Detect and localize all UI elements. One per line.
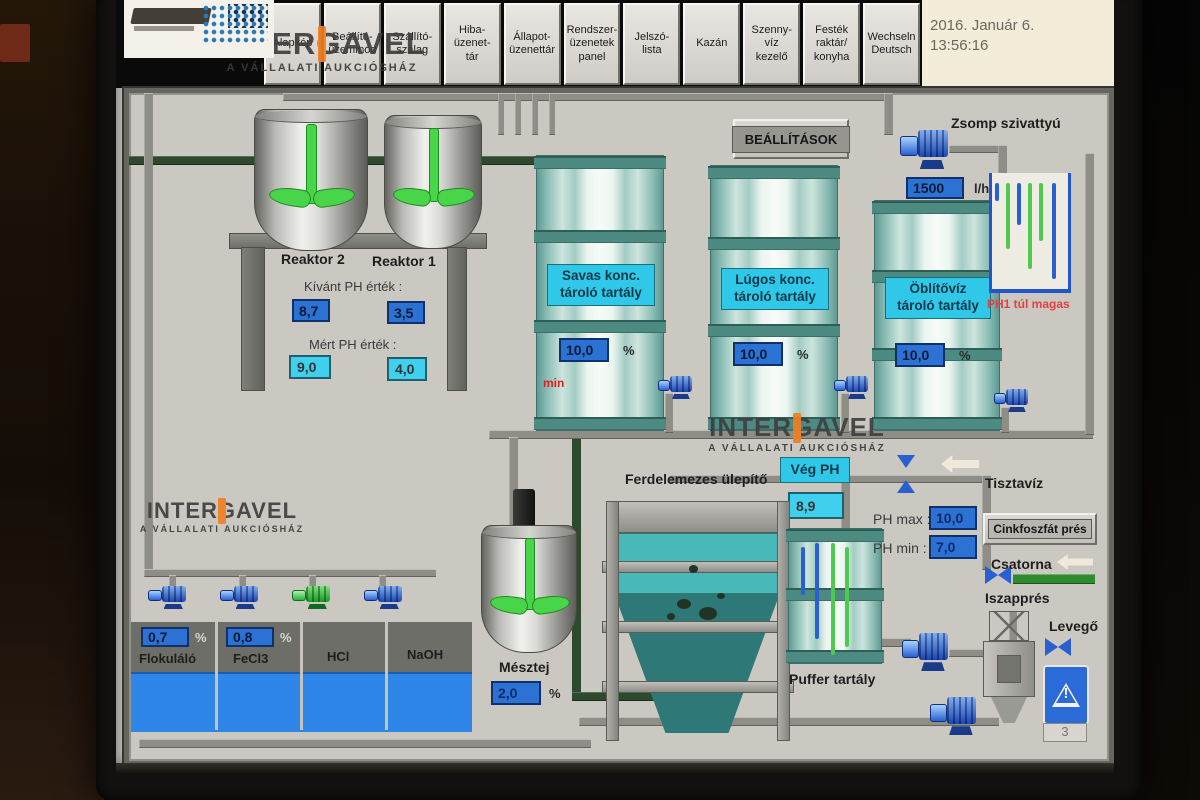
tank-hoop: [534, 417, 666, 430]
bezel-bottom-edge: [116, 763, 1114, 773]
acid-tank-level-input[interactable]: 10,0: [559, 338, 609, 362]
final-ph-label: Vég PH: [780, 457, 850, 483]
flokulalo-label: Flokuláló: [139, 651, 196, 666]
pump-head: [834, 380, 847, 391]
pump-base: [164, 604, 183, 609]
tank-hoop: [708, 237, 840, 250]
pump-base: [920, 160, 944, 169]
lime-milk-unit: %: [549, 686, 561, 701]
hcl-pump-running[interactable]: [291, 585, 337, 609]
tank-separator: [385, 622, 388, 730]
sump-pump[interactable]: [899, 127, 957, 169]
rinse-tank-unit: %: [959, 348, 971, 363]
level-sensor-bar: [1017, 183, 1021, 225]
alarm-warning-sign[interactable]: !: [1043, 665, 1089, 725]
watermark-mid-left: INTERGAVEL A VÁLLALATI AUKCIÓSHÁZ: [122, 498, 322, 534]
mixer-blade: [312, 185, 356, 209]
tab-festek-raktar[interactable]: Festék raktár/ konyha: [803, 3, 860, 85]
level-sensor-bar: [995, 183, 999, 201]
warning-exclamation: !: [1064, 685, 1069, 702]
buffer-transfer-pump[interactable]: [901, 631, 957, 671]
pump-body: [846, 376, 868, 392]
acid-storage-tank: Savas konc. tároló tartály 10,0 % min: [536, 155, 664, 431]
flokulalo-unit: %: [195, 630, 207, 645]
process-mimic-panel: Reaktor 2 Reaktor 1 Kívánt PH érték : 8,…: [124, 88, 1114, 764]
watermark-tagline: A VÁLLALATI AUKCIÓSHÁZ: [672, 443, 922, 454]
pump-head: [900, 136, 917, 155]
tab-allapot-uzenettar[interactable]: Állapot- üzenettár: [504, 3, 561, 85]
pump-base: [236, 604, 255, 609]
pump-body: [1006, 389, 1028, 405]
pump-head: [994, 393, 1007, 404]
pipe: [532, 93, 538, 135]
support-column: [241, 247, 265, 391]
settler-rail: [602, 621, 794, 633]
fecl3-pump[interactable]: [219, 585, 265, 609]
pipe: [998, 145, 1007, 175]
watermark-orange-bar: [793, 413, 801, 443]
photo-background-left: [0, 0, 104, 800]
air-label: Levegő: [1049, 618, 1098, 634]
sludge-speck: [717, 593, 725, 599]
alkaline-tank-label: Lúgos konc. tároló tartály: [721, 268, 829, 310]
sludge-speck: [699, 607, 717, 620]
zinc-phosphate-press-button[interactable]: Cinkfoszfát prés: [983, 513, 1097, 545]
support-column: [447, 247, 467, 391]
sewer-arrow-icon: [1057, 554, 1093, 570]
alkaline-storage-tank: Lúgos konc. tároló tartály 10,0 %: [710, 165, 838, 431]
reactor1-measured-ph-value: 4,0: [387, 357, 427, 381]
sump-flow-value: 1500: [906, 177, 964, 199]
grate-icon: [992, 173, 1068, 180]
fecl3-conc-input[interactable]: 0,8: [226, 627, 274, 647]
drain-pipe: [1013, 574, 1095, 584]
tab-kazan[interactable]: Kazán: [683, 3, 740, 85]
reactor-1-vessel[interactable]: [384, 115, 482, 249]
date-text: 2016. Január 6.: [930, 16, 1110, 36]
watermark-orange-bar: [318, 26, 326, 62]
acid-tank-unit: %: [623, 343, 635, 358]
sludge-speck: [667, 613, 675, 620]
pump-body: [947, 697, 976, 723]
tank-separator: [215, 622, 218, 730]
pump-base: [380, 604, 399, 609]
alkaline-tank-level-input[interactable]: 10,0: [733, 342, 783, 366]
pump-head: [364, 590, 378, 601]
tab-szennyviz-kezelo[interactable]: Szenny- víz kezelő: [743, 3, 800, 85]
pump-head: [902, 640, 919, 658]
rinse-tank-label: Öblítővíz tároló tartály: [885, 277, 991, 319]
press-plate: [997, 655, 1021, 683]
settler-rail: [602, 561, 794, 573]
acid-tank-label: Savas konc. tároló tartály: [547, 264, 655, 306]
rinse-tank-level-input[interactable]: 10,0: [895, 343, 945, 367]
fecl3-label: FeCl3: [233, 651, 268, 666]
pump-head: [658, 380, 671, 391]
press-hopper: [989, 611, 1029, 641]
level-sensor-bar: [831, 543, 835, 655]
level-sensor-bar: [815, 543, 819, 639]
pipe: [498, 93, 504, 135]
pump-body: [306, 586, 330, 602]
pipe: [283, 93, 893, 101]
level-sensor-bar: [845, 547, 849, 647]
mixer-shaft: [429, 128, 439, 202]
settings-button[interactable]: BEÁLLÍTÁSOK: [733, 119, 849, 159]
alarm-count: 3: [1043, 723, 1087, 742]
vendor-logo-wordmark: [130, 8, 211, 24]
mixer-blade: [436, 185, 476, 207]
settler-rail: [602, 681, 794, 693]
acid-dosing-pump[interactable]: [657, 375, 699, 399]
level-sensor-bar: [1006, 183, 1010, 249]
alkaline-dosing-pump[interactable]: [833, 375, 875, 399]
reactor-2-vessel[interactable]: [254, 109, 368, 251]
clean-water-arrow-icon: [941, 455, 979, 473]
ph-max-label: PH max :: [873, 511, 931, 527]
sump-pump-label: Zsomp szivattyú: [951, 115, 1061, 131]
pump-body: [918, 130, 948, 158]
measured-ph-label: Mért PH érték :: [309, 337, 396, 352]
sludge-pump[interactable]: [929, 695, 985, 735]
buffer-tank-label: Puffer tartály: [789, 671, 875, 687]
pipe: [515, 93, 521, 135]
mixer-blade: [489, 593, 529, 615]
sump-pit-graphic: [989, 173, 1071, 293]
pump-body: [919, 633, 948, 659]
pump-base: [308, 604, 327, 609]
zinc-phosphate-press-label: Cinkfoszfát prés: [988, 519, 1091, 539]
reactor2-desired-ph-input[interactable]: 8,7: [292, 299, 330, 322]
level-sensor-bar: [1039, 183, 1043, 241]
tab-wechseln-deutsch[interactable]: Wechseln Deutsch: [863, 3, 920, 85]
time-text: 13:56:16: [930, 36, 1110, 56]
outlet-valve[interactable]: [897, 455, 915, 493]
sewer-label: Csatorna: [991, 556, 1052, 572]
rinse-dosing-pump[interactable]: [993, 388, 1035, 412]
pump-base: [949, 726, 973, 735]
reactor-1-label: Reaktor 1: [372, 253, 436, 269]
alkaline-tank-unit: %: [797, 347, 809, 362]
lime-milk-label: Mésztej: [499, 659, 550, 675]
rinse-water-storage-tank: Öblítővíz tároló tartály 10,0 %: [874, 200, 1000, 431]
pipe: [1085, 153, 1094, 435]
pipe: [884, 93, 893, 135]
ph-min-label: PH min :: [873, 540, 927, 556]
level-sensor-bar: [801, 547, 805, 595]
ph-max-input[interactable]: 10,0: [929, 506, 977, 530]
pump-body: [378, 586, 402, 602]
pipe: [139, 739, 591, 748]
level-sensor-bar: [1028, 183, 1032, 269]
tank-hoop: [872, 201, 1002, 214]
settings-button-label: BEÁLLÍTÁSOK: [732, 126, 850, 153]
pump-body: [234, 586, 258, 602]
tank-hoop: [708, 324, 840, 337]
clarifier-label: Ferdelemezes ülepítő: [625, 471, 767, 487]
pump-head: [220, 590, 234, 601]
watermark-orange-bar: [218, 498, 226, 524]
photo-background-object: [0, 24, 30, 62]
ph-min-input[interactable]: 7,0: [929, 535, 977, 559]
pump-base: [921, 662, 945, 671]
tank-hoop: [786, 650, 884, 663]
sludge-speck: [677, 599, 691, 609]
fecl3-unit: %: [280, 630, 292, 645]
pump-base: [672, 394, 690, 399]
naoh-label: NaOH: [407, 647, 443, 662]
flokulalo-conc-input[interactable]: 0,7: [141, 627, 189, 647]
watermark-tagline: A VÁLLALATI AUKCIÓSHÁZ: [162, 62, 482, 74]
mixer-blade: [392, 185, 432, 207]
flokulalo-pump[interactable]: [147, 585, 193, 609]
pump-head: [292, 590, 306, 601]
reactor1-desired-ph-input[interactable]: 3,5: [387, 301, 425, 324]
settler-leg: [606, 501, 619, 741]
desired-ph-label: Kívánt PH érték :: [304, 279, 402, 294]
tank-separator: [300, 622, 303, 730]
settler-funnel: [614, 593, 780, 733]
clean-water-label: Tisztavíz: [985, 475, 1043, 491]
final-ph-value: 8,9: [788, 492, 844, 519]
level-sensor-bar: [1052, 183, 1056, 279]
vendor-logo-subline: [134, 26, 194, 31]
pipe: [549, 93, 555, 135]
pump-body: [162, 586, 186, 602]
lime-milk-conc-input[interactable]: 2,0: [491, 681, 541, 705]
watermark-tagline: A VÁLLALATI AUKCIÓSHÁZ: [122, 524, 322, 534]
mixer-blade: [531, 593, 571, 615]
tab-jelszo-lista[interactable]: Jelszó- lista: [623, 3, 680, 85]
min-level-flag: min: [543, 376, 564, 390]
hmi-screen: 2016. Január 6. 13:56:16 Alapkép Beállít…: [116, 0, 1114, 764]
sludge-press-label: Iszapprés: [985, 590, 1050, 606]
pump-base: [1008, 407, 1026, 412]
vendor-logo: [124, 0, 274, 58]
ph1-alarm-text: PH1 túl magas: [987, 297, 1070, 311]
air-valve[interactable]: [1045, 638, 1071, 656]
pipe: [144, 569, 436, 577]
tank-hoop: [534, 156, 666, 169]
pump-head: [930, 704, 947, 722]
pump-base: [848, 394, 866, 399]
tank-hoop: [708, 166, 840, 179]
sludge-speck: [689, 565, 698, 573]
pump-head: [148, 590, 162, 601]
datetime-display: 2016. Január 6. 13:56:16: [930, 16, 1110, 57]
naoh-pump[interactable]: [363, 585, 409, 609]
tank-hoop: [534, 230, 666, 243]
tank-hoop: [534, 320, 666, 333]
watermark-center: INTERGAVEL A VÁLLALATI AUKCIÓSHÁZ: [672, 412, 922, 454]
sump-flow-unit: l/h: [974, 181, 989, 196]
tab-rendszer-uzenetek[interactable]: Rendszer- üzenetek panel: [564, 3, 621, 85]
lime-milk-tank[interactable]: [481, 525, 577, 653]
vendor-logo-dot-matrix-dark: [228, 4, 268, 28]
pump-body: [670, 376, 692, 392]
photo-background-right: [1136, 0, 1200, 800]
reactor2-measured-ph-value: 9,0: [289, 355, 331, 379]
settler-top-beam: [606, 501, 790, 533]
photo-of-hmi-terminal: 2016. Január 6. 13:56:16 Alapkép Beállít…: [0, 0, 1200, 800]
tank-hoop: [786, 529, 884, 542]
reactor-2-label: Reaktor 2: [281, 251, 345, 267]
hcl-label: HCl: [327, 649, 349, 664]
buffer-tank: [788, 528, 882, 664]
